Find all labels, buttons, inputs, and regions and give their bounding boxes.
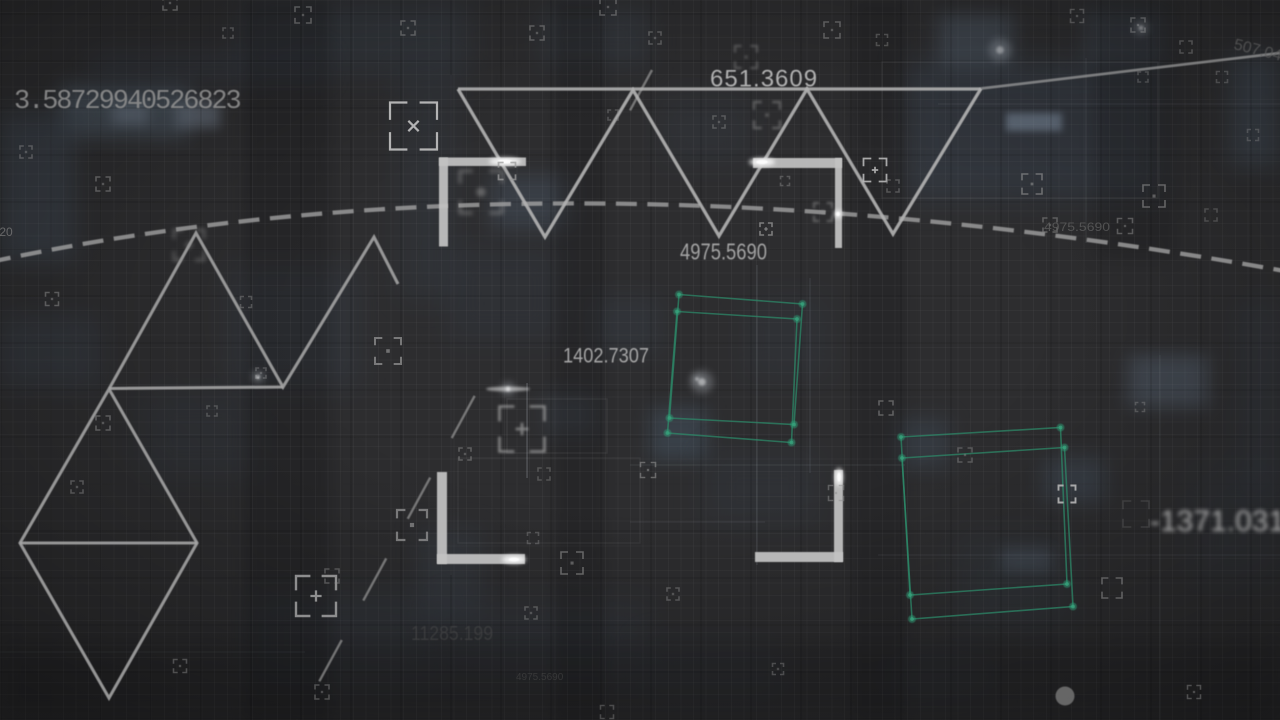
svg-text:1402.7307: 1402.7307 — [563, 345, 649, 368]
svg-text:651.3609: 651.3609 — [710, 66, 818, 93]
svg-text:4975.5690: 4975.5690 — [516, 672, 564, 683]
svg-text:4975.5690: 4975.5690 — [1044, 222, 1110, 234]
svg-text:3.58729940526823: 3.58729940526823 — [14, 87, 241, 117]
svg-text:11285.199: 11285.199 — [411, 623, 493, 645]
svg-text:-1371.031: -1371.031 — [1150, 505, 1280, 538]
svg-text:4975.5690: 4975.5690 — [680, 239, 767, 265]
svg-text:507.04: 507.04 — [1232, 36, 1280, 64]
svg-text:2520: 2520 — [0, 225, 13, 239]
